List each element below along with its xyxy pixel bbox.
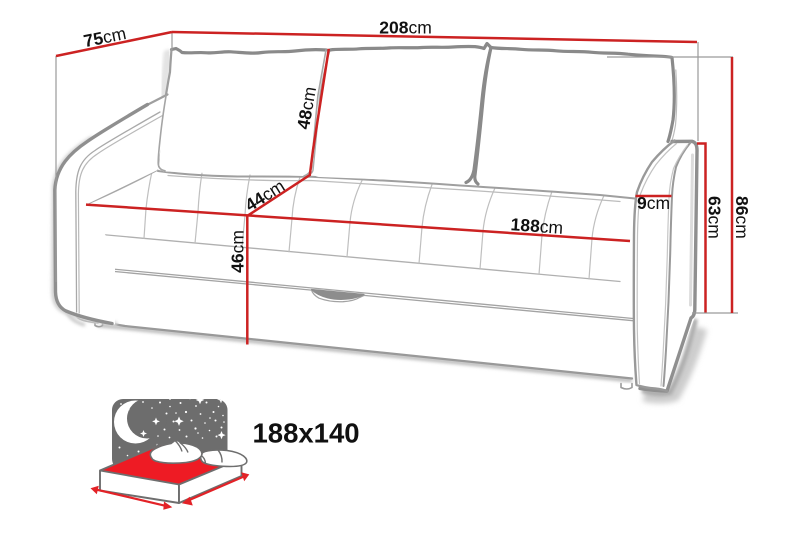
svg-text:86cm: 86cm xyxy=(732,196,752,239)
svg-text:188x140: 188x140 xyxy=(253,418,360,449)
svg-text:188cm: 188cm xyxy=(510,214,564,238)
svg-text:46cm: 46cm xyxy=(228,230,248,273)
svg-text:9cm: 9cm xyxy=(637,193,670,213)
svg-text:63cm: 63cm xyxy=(705,196,725,239)
svg-text:208cm: 208cm xyxy=(379,18,432,38)
